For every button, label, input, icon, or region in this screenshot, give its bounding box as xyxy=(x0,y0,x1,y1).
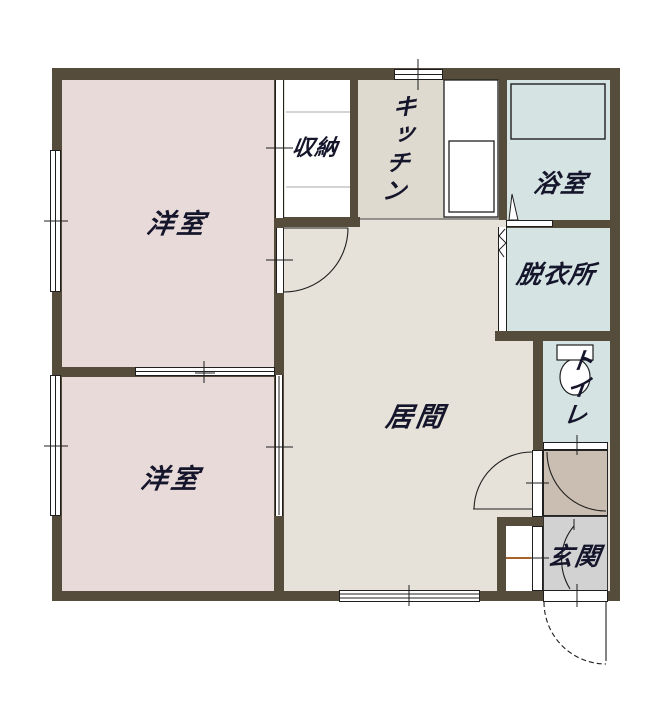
wall-alcove-left xyxy=(497,517,506,601)
wall-exterior-top xyxy=(52,68,620,80)
door-arc-front-door xyxy=(544,602,606,664)
sliding-door-between-rooms xyxy=(135,367,275,376)
label-living-room: 居間 xyxy=(344,403,489,433)
sliding-door-west2-living xyxy=(275,375,283,516)
floor-plan: 洋室 収納 キッチン 浴室 脱衣所 居間 トイレ 洋室 玄関 xyxy=(0,0,669,706)
window-kitchen-top xyxy=(394,69,443,80)
wall-exterior-left xyxy=(52,68,62,601)
window-west2-left xyxy=(50,375,61,516)
wall-kitchen-bath xyxy=(499,68,507,220)
label-bathroom: 浴室 xyxy=(509,170,613,198)
label-western-room-1: 洋室 xyxy=(105,210,250,240)
wall-below-dressing xyxy=(495,331,620,341)
bath-folding-door-opening xyxy=(506,220,553,227)
room-bathroom xyxy=(507,80,610,220)
wall-exterior-bottom xyxy=(52,591,620,601)
label-western-room-2: 洋室 xyxy=(99,465,244,495)
door-living-hall xyxy=(532,450,543,517)
label-entrance: 玄関 xyxy=(513,543,637,571)
room-hall xyxy=(543,450,608,516)
label-dressing-room: 脱衣所 xyxy=(494,261,618,289)
wall-toilet-left xyxy=(533,331,543,450)
wall-under-closet xyxy=(274,217,360,227)
window-west1-left xyxy=(50,150,61,292)
window-living-bottom xyxy=(339,590,480,602)
entrance-front-door xyxy=(543,590,608,602)
label-closet: 収納 xyxy=(277,136,353,160)
door-opening-west1-living xyxy=(276,228,284,293)
